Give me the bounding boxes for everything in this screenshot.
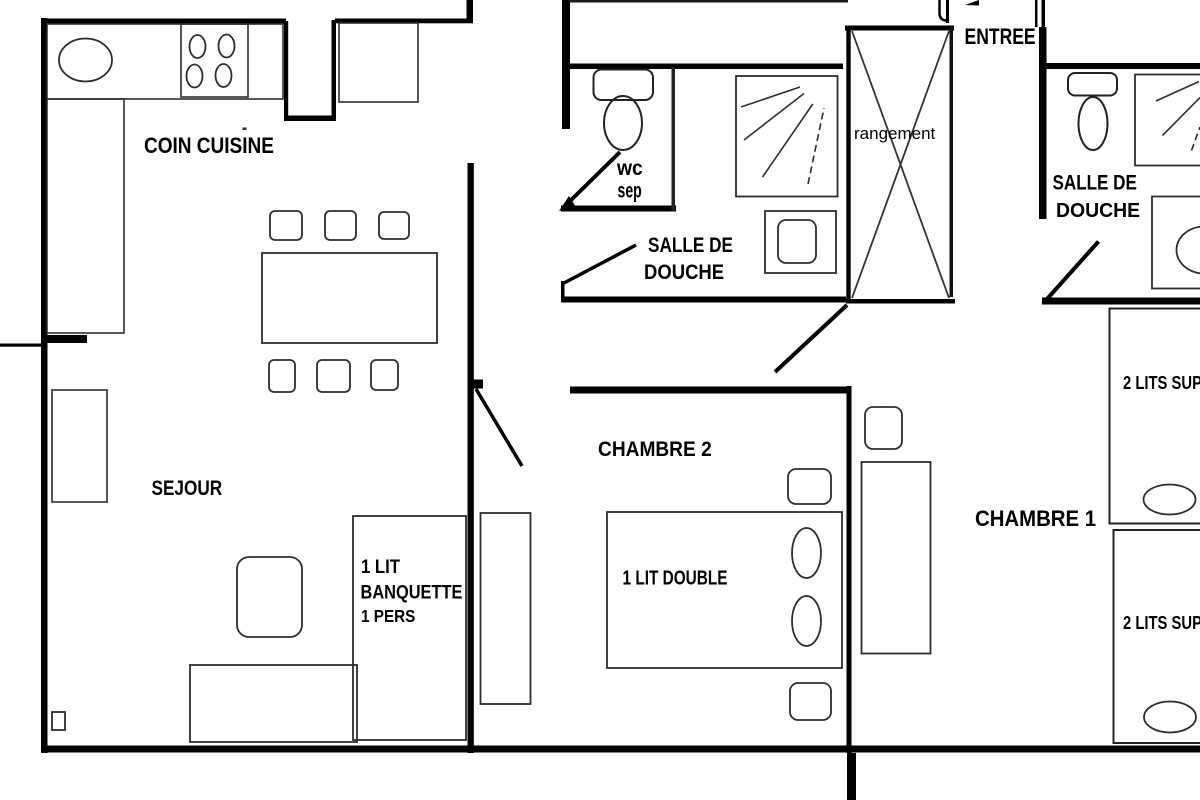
svg-text:DOUCHE: DOUCHE: [1056, 200, 1140, 222]
svg-text:1 LIT: 1 LIT: [361, 556, 400, 577]
svg-text:COIN CUISINE: COIN CUISINE: [144, 134, 274, 159]
svg-text:1 PERS: 1 PERS: [361, 606, 415, 626]
svg-text:SEJOUR: SEJOUR: [152, 476, 223, 500]
svg-text:ENTREE: ENTREE: [965, 25, 1036, 50]
svg-text:BANQUETTE: BANQUETTE: [361, 581, 463, 603]
svg-text:CHAMBRE 1: CHAMBRE 1: [975, 507, 1096, 531]
svg-text:rangement: rangement: [854, 124, 936, 143]
svg-text:SALLE DE: SALLE DE: [1053, 172, 1138, 195]
svg-text:CHAMBRE 2: CHAMBRE 2: [598, 438, 712, 461]
svg-text:1 LIT DOUBLE: 1 LIT DOUBLE: [623, 566, 728, 589]
svg-text:wc: wc: [616, 157, 643, 180]
svg-text:2 LITS SUPERPOSES: 2 LITS SUPERPOSES: [1123, 372, 1200, 393]
svg-text:2 LITS SUPERPOSES: 2 LITS SUPERPOSES: [1123, 612, 1200, 633]
svg-text:sep: sep: [618, 179, 642, 202]
svg-text:SALLE DE: SALLE DE: [648, 233, 733, 257]
svg-text:DOUCHE: DOUCHE: [644, 261, 724, 285]
